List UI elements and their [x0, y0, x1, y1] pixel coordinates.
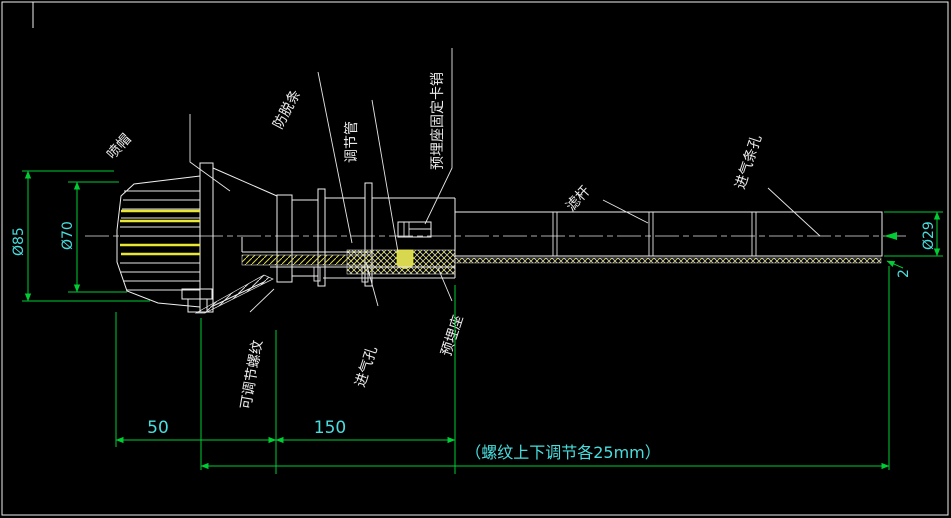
lower-tab: [314, 267, 320, 281]
label-air-inlet-slot: 进气条孔: [732, 133, 765, 192]
flange: [318, 189, 325, 286]
embedded-pipe-wall-hatch: [455, 258, 881, 263]
leader-spray-cap: [190, 114, 230, 191]
dim-text-wall-thickness: 2: [896, 269, 912, 278]
dim-text-rod-diameter: Ø29: [921, 221, 937, 250]
cap-ribs: [120, 191, 200, 290]
label-adjusting-tube: 调节管: [344, 121, 360, 163]
label-anti-slip-strip: 防脱条: [270, 87, 305, 132]
dim-text-adjustment-note: （螺纹上下调节各25mm）: [465, 443, 661, 462]
cap-wall-section-hatch: [196, 275, 273, 313]
dim-text-inner-diameter: Ø70: [60, 221, 76, 250]
label-air-inlet-hole: 进气孔: [353, 344, 381, 389]
centerline: [85, 232, 906, 240]
label-adjustable-thread: 可调节螺纹: [238, 339, 266, 411]
seat-fixing-pin-detail: [398, 222, 431, 237]
label-filter-rod: 滤杆: [563, 183, 594, 215]
flange: [277, 195, 292, 282]
dim-text-outer-diameter: Ø85: [11, 227, 27, 256]
filter-rod-body: [455, 212, 882, 263]
dimension-right: Ø29 2: [884, 212, 943, 278]
label-embedded-seat: 预埋座: [439, 313, 467, 358]
leader-adjusting-tube: [372, 100, 398, 252]
cap-base-nut: [182, 289, 212, 299]
centerline-arrow: [884, 232, 897, 240]
thread-zone-hatch: [242, 255, 372, 265]
dim-text-cap-length: 50: [147, 418, 169, 438]
pin-slot: [397, 250, 413, 269]
cad-drawing-canvas: 喷帽 防脱条 调节管 预埋座固定卡销 滤杆 进气条孔 可调节螺纹 进气孔 预埋座…: [0, 0, 951, 518]
embedded-seat-body: [347, 198, 455, 278]
spray-cap-body: [117, 163, 273, 313]
leader-adjustable-thread: [250, 289, 274, 312]
dim-text-body-length: 150: [314, 418, 346, 438]
dimension-adjustment-note: （螺纹上下调节各25mm）: [201, 266, 889, 470]
leader-lines: [190, 48, 820, 312]
label-seat-fixing-pin: 预埋座固定卡销: [430, 72, 446, 170]
part-labels: 喷帽 防脱条 调节管 预埋座固定卡销 滤杆 进气条孔 可调节螺纹 进气孔 预埋座: [104, 72, 765, 411]
aerator-section-drawing: 喷帽 防脱条 调节管 预埋座固定卡销 滤杆 进气条孔 可调节螺纹 进气孔 预埋座…: [0, 0, 951, 518]
label-spray-cap: 喷帽: [104, 131, 135, 163]
dimension-bottom-lengths: 50 150: [116, 285, 455, 474]
